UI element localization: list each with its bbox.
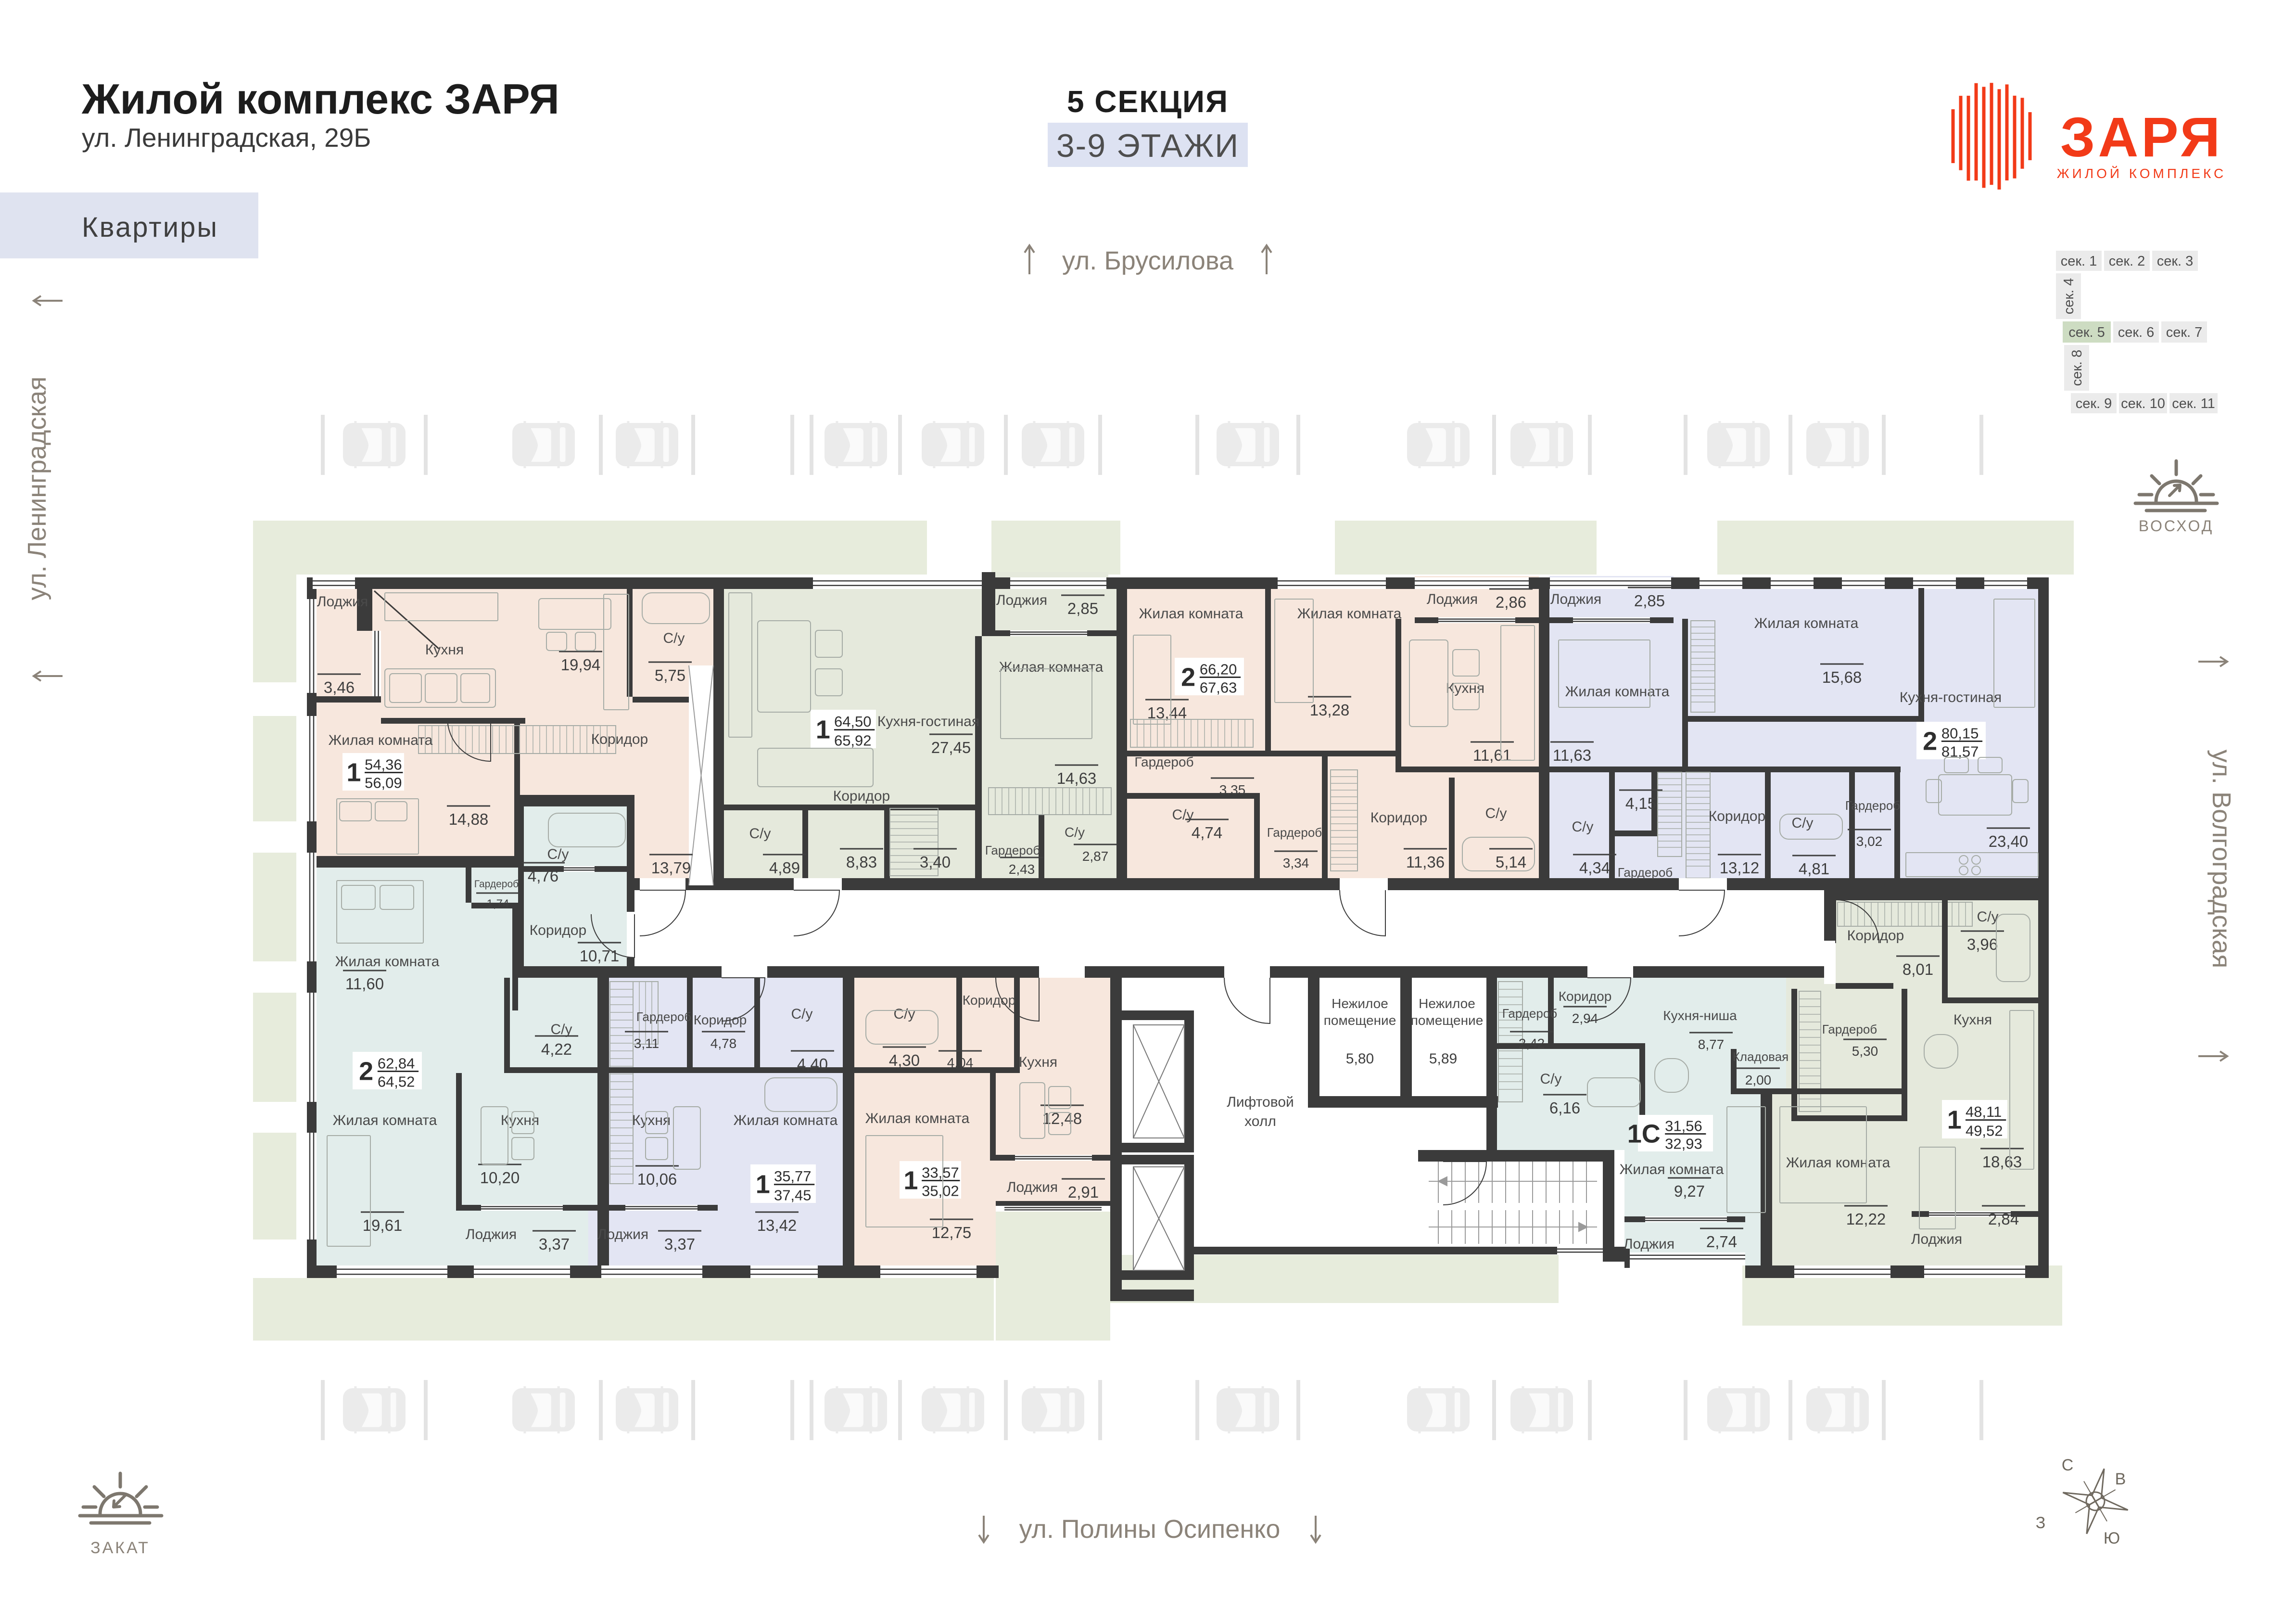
svg-text:3,35: 3,35 [1219, 782, 1246, 797]
svg-text:2,85: 2,85 [1634, 592, 1665, 610]
svg-text:ул. Ленинградская: ул. Ленинградская [23, 377, 51, 601]
svg-text:4,22: 4,22 [541, 1040, 572, 1058]
svg-text:Лифтовой: Лифтовой [1227, 1094, 1294, 1110]
svg-text:1,74: 1,74 [487, 897, 509, 910]
svg-text:С/у: С/у [547, 846, 569, 862]
svg-text:С/у: С/у [1540, 1071, 1562, 1087]
svg-text:Кухня: Кухня [632, 1112, 671, 1128]
svg-text:4,81: 4,81 [1799, 860, 1829, 878]
svg-text:Гардероб: Гардероб [1822, 1022, 1877, 1036]
svg-text:ул. Брусилова: ул. Брусилова [1062, 246, 1234, 275]
svg-text:Кухня-гостиная: Кухня-гостиная [1900, 690, 2002, 705]
svg-text:Жилой комплекс ЗАРЯ: Жилой комплекс ЗАРЯ [81, 75, 559, 123]
svg-text:2: 2 [1923, 727, 1937, 755]
svg-text:1: 1 [1947, 1105, 1962, 1134]
svg-text:27,45: 27,45 [931, 739, 971, 756]
svg-text:3,96: 3,96 [1967, 935, 1998, 953]
svg-text:Гардероб: Гардероб [474, 879, 519, 890]
svg-text:3,46: 3,46 [324, 678, 355, 696]
svg-text:10,71: 10,71 [580, 947, 620, 965]
svg-text:сек. 3: сек. 3 [2157, 254, 2194, 269]
svg-text:11,63: 11,63 [1553, 746, 1591, 764]
svg-text:Коридор: Коридор [694, 1012, 747, 1027]
svg-text:2,85: 2,85 [1067, 600, 1098, 617]
svg-text:10,20: 10,20 [480, 1169, 520, 1187]
svg-text:2,84: 2,84 [1988, 1210, 2019, 1228]
svg-text:19,61: 19,61 [363, 1216, 403, 1234]
svg-text:2: 2 [359, 1057, 373, 1086]
svg-text:2,94: 2,94 [1572, 1011, 1598, 1026]
svg-text:2,43: 2,43 [1009, 862, 1035, 877]
svg-text:сек. 2: сек. 2 [2109, 254, 2145, 269]
svg-text:Коридор: Коридор [1709, 808, 1765, 824]
svg-text:Коридор: Коридор [530, 922, 586, 938]
svg-text:сек. 8: сек. 8 [2069, 350, 2085, 386]
svg-text:13,12: 13,12 [1720, 859, 1760, 877]
svg-text:ул. Волгоградская: ул. Волгоградская [2207, 750, 2236, 969]
svg-text:Гардероб: Гардероб [1502, 1006, 1557, 1021]
svg-text:4,30: 4,30 [889, 1051, 920, 1069]
svg-text:2: 2 [1181, 663, 1195, 691]
svg-text:2,87: 2,87 [1082, 849, 1109, 864]
svg-text:5,14: 5,14 [1496, 853, 1526, 871]
svg-text:Жилая комната: Жилая комната [1786, 1155, 1890, 1171]
svg-text:сек. 1: сек. 1 [2061, 254, 2097, 269]
svg-text:З: З [2036, 1514, 2046, 1532]
svg-text:Коридор: Коридор [1559, 989, 1612, 1004]
svg-text:62,84: 62,84 [378, 1055, 415, 1072]
svg-text:67,63: 67,63 [1200, 679, 1237, 696]
svg-text:Коридор: Коридор [591, 731, 648, 747]
svg-text:Кухня-гостиная: Кухня-гостиная [877, 714, 979, 729]
svg-text:В: В [2115, 1470, 2126, 1488]
svg-text:Гардероб: Гардероб [1267, 825, 1322, 840]
svg-text:ЖИЛОЙ КОМПЛЕКС: ЖИЛОЙ КОМПЛЕКС [2057, 166, 2227, 181]
svg-text:1: 1 [816, 715, 830, 744]
svg-text:С/у: С/у [1572, 819, 1594, 835]
svg-text:Лоджия: Лоджия [996, 592, 1047, 608]
svg-text:холл: холл [1244, 1113, 1276, 1129]
svg-text:4,89: 4,89 [769, 859, 800, 877]
svg-text:1: 1 [346, 758, 361, 787]
svg-text:Жилая комната: Жилая комната [999, 659, 1104, 675]
svg-text:5,89: 5,89 [1429, 1051, 1457, 1067]
svg-text:ул. Полины Осипенко: ул. Полины Осипенко [1019, 1515, 1281, 1544]
svg-text:3-9 ЭТАЖИ: 3-9 ЭТАЖИ [1056, 128, 1239, 164]
svg-text:Лоджия: Лоджия [1550, 591, 1601, 607]
svg-text:Нежилое: Нежилое [1332, 996, 1388, 1011]
svg-text:С/у: С/у [1172, 807, 1194, 823]
svg-text:18,63: 18,63 [1982, 1153, 2022, 1171]
svg-text:6,16: 6,16 [1549, 1099, 1580, 1117]
svg-text:48,11: 48,11 [1966, 1103, 2002, 1120]
svg-text:1: 1 [903, 1166, 918, 1195]
svg-text:4,34: 4,34 [1579, 859, 1610, 877]
svg-text:37,45: 37,45 [774, 1187, 812, 1203]
svg-text:Нежилое: Нежилое [1419, 996, 1475, 1011]
svg-text:Кухня: Кухня [425, 642, 464, 658]
svg-text:8,83: 8,83 [846, 853, 877, 871]
svg-text:3,34: 3,34 [1283, 856, 1309, 870]
svg-text:С/у: С/у [1065, 825, 1085, 840]
svg-text:С/у: С/у [663, 630, 685, 646]
svg-text:Жилая комната: Жилая комната [333, 1112, 437, 1128]
svg-text:С/у: С/у [1485, 805, 1507, 821]
svg-text:Лоджия: Лоджия [317, 594, 368, 610]
svg-text:1: 1 [756, 1170, 770, 1199]
svg-text:5,30: 5,30 [1852, 1044, 1878, 1059]
svg-text:14,88: 14,88 [449, 810, 489, 828]
svg-text:66,20: 66,20 [1200, 661, 1237, 677]
svg-text:Кухня-ниша: Кухня-ниша [1663, 1008, 1737, 1023]
svg-text:Кухня: Кухня [1019, 1054, 1057, 1070]
svg-text:4,76: 4,76 [528, 867, 558, 885]
svg-text:2,86: 2,86 [1496, 593, 1526, 611]
svg-text:Жилая комната: Жилая комната [1565, 684, 1670, 700]
svg-text:Лоджия: Лоджия [1911, 1231, 1962, 1247]
svg-text:3,37: 3,37 [664, 1235, 695, 1253]
svg-text:Жилая комната: Жилая комната [1139, 606, 1243, 622]
svg-text:49,52: 49,52 [1966, 1122, 2003, 1139]
svg-text:2,91: 2,91 [1068, 1183, 1099, 1201]
svg-text:сек. 9: сек. 9 [2076, 396, 2112, 411]
svg-text:С: С [2062, 1456, 2074, 1474]
svg-text:12,75: 12,75 [932, 1224, 972, 1241]
svg-text:2,42: 2,42 [1519, 1036, 1545, 1051]
svg-text:Коридор: Коридор [1847, 928, 1904, 944]
svg-text:4,78: 4,78 [710, 1036, 737, 1051]
svg-text:сек. 7: сек. 7 [2166, 325, 2203, 340]
svg-text:Кухня: Кухня [1954, 1012, 1992, 1028]
svg-text:Кладовая: Кладовая [1733, 1049, 1789, 1064]
svg-text:23,40: 23,40 [1989, 832, 2029, 850]
svg-text:сек. 5: сек. 5 [2068, 325, 2105, 340]
svg-text:12,22: 12,22 [1846, 1210, 1886, 1228]
svg-text:13,42: 13,42 [757, 1216, 797, 1234]
svg-text:35,77: 35,77 [774, 1168, 812, 1185]
svg-text:3,02: 3,02 [1856, 834, 1883, 849]
svg-text:Гардероб: Гардероб [1845, 798, 1900, 813]
svg-text:13,79: 13,79 [651, 859, 691, 877]
svg-text:4,74: 4,74 [1192, 824, 1222, 842]
svg-text:11,36: 11,36 [1406, 853, 1445, 871]
svg-text:помещение: помещение [1411, 1013, 1484, 1028]
svg-text:56,09: 56,09 [365, 775, 402, 792]
svg-text:сек. 11: сек. 11 [2172, 396, 2215, 411]
svg-text:13,28: 13,28 [1310, 701, 1350, 719]
svg-text:С/у: С/у [749, 826, 771, 842]
svg-text:С/у: С/у [894, 1006, 915, 1022]
svg-text:С/у: С/у [1792, 815, 1814, 831]
svg-text:сек. 4: сек. 4 [2061, 278, 2077, 315]
svg-text:4,15: 4,15 [1625, 794, 1656, 812]
svg-text:65,92: 65,92 [834, 732, 872, 749]
svg-text:Лоджия: Лоджия [1624, 1236, 1674, 1252]
svg-text:2,74: 2,74 [1706, 1233, 1737, 1251]
svg-text:Гардероб: Гардероб [1134, 754, 1193, 769]
svg-text:Гардероб: Гардероб [636, 1010, 691, 1024]
svg-text:Жилая комната: Жилая комната [1754, 615, 1859, 631]
svg-text:8,01: 8,01 [1903, 960, 1933, 978]
svg-text:ЗАКАТ: ЗАКАТ [90, 1539, 150, 1557]
svg-text:2,00: 2,00 [1745, 1073, 1772, 1087]
svg-text:3,11: 3,11 [634, 1036, 659, 1051]
svg-text:Жилая комната: Жилая комната [329, 732, 433, 748]
svg-text:64,52: 64,52 [378, 1073, 415, 1090]
svg-text:15,68: 15,68 [1822, 668, 1862, 686]
svg-text:31,56: 31,56 [1665, 1117, 1702, 1134]
svg-text:ЗАРЯ: ЗАРЯ [2060, 106, 2223, 168]
svg-text:ул. Ленинградская, 29Б: ул. Ленинградская, 29Б [82, 123, 371, 153]
svg-text:5,75: 5,75 [655, 666, 685, 684]
svg-text:8,77: 8,77 [1698, 1037, 1725, 1052]
svg-text:3,37: 3,37 [539, 1235, 570, 1253]
svg-text:11,60: 11,60 [345, 975, 384, 993]
svg-text:Лоджия: Лоджия [597, 1227, 648, 1242]
svg-text:4,40: 4,40 [797, 1055, 828, 1073]
svg-text:Жилая комната: Жилая комната [1620, 1162, 1724, 1177]
svg-text:ВОСХОД: ВОСХОД [2139, 517, 2214, 535]
svg-text:сек. 10: сек. 10 [2121, 396, 2165, 411]
svg-text:С/у: С/у [1977, 909, 1999, 925]
svg-text:19,94: 19,94 [561, 656, 601, 674]
svg-text:Жилая комната: Жилая комната [865, 1111, 970, 1126]
svg-text:4,04: 4,04 [947, 1055, 974, 1070]
svg-text:Жилая комната: Жилая комната [335, 954, 440, 970]
svg-text:33,57: 33,57 [922, 1164, 959, 1181]
svg-text:Лоджия: Лоджия [466, 1227, 517, 1242]
svg-text:Гардероб: Гардероб [985, 843, 1040, 857]
svg-text:5,80: 5,80 [1346, 1051, 1374, 1067]
svg-text:Коридор: Коридор [963, 993, 1016, 1008]
svg-text:Квартиры: Квартиры [82, 212, 218, 243]
svg-text:Лоджия: Лоджия [1007, 1179, 1058, 1195]
svg-text:сек. 6: сек. 6 [2118, 325, 2155, 340]
svg-text:3,40: 3,40 [920, 853, 951, 871]
svg-text:Ю: Ю [2104, 1529, 2120, 1547]
svg-text:Жилая комната: Жилая комната [734, 1112, 838, 1128]
svg-text:9,27: 9,27 [1674, 1182, 1705, 1200]
svg-text:11,61: 11,61 [1473, 746, 1511, 764]
svg-text:64,50: 64,50 [834, 713, 872, 730]
svg-text:54,36: 54,36 [365, 756, 402, 773]
svg-text:Коридор: Коридор [833, 788, 890, 804]
svg-text:Коридор: Коридор [1370, 810, 1427, 826]
svg-text:С/у: С/у [551, 1022, 572, 1037]
svg-text:14,63: 14,63 [1057, 769, 1097, 787]
svg-text:80,15: 80,15 [1941, 725, 1979, 741]
svg-text:С/у: С/у [791, 1006, 813, 1022]
svg-text:Лоджия: Лоджия [1427, 591, 1478, 607]
svg-text:35,02: 35,02 [922, 1183, 959, 1200]
svg-text:Гардероб: Гардероб [1618, 865, 1673, 880]
svg-text:5 СЕКЦИЯ: 5 СЕКЦИЯ [1067, 84, 1229, 119]
svg-text:10,06: 10,06 [637, 1170, 677, 1188]
svg-text:1С: 1С [1627, 1119, 1661, 1148]
svg-text:помещение: помещение [1324, 1013, 1396, 1028]
svg-text:32,93: 32,93 [1665, 1136, 1702, 1152]
